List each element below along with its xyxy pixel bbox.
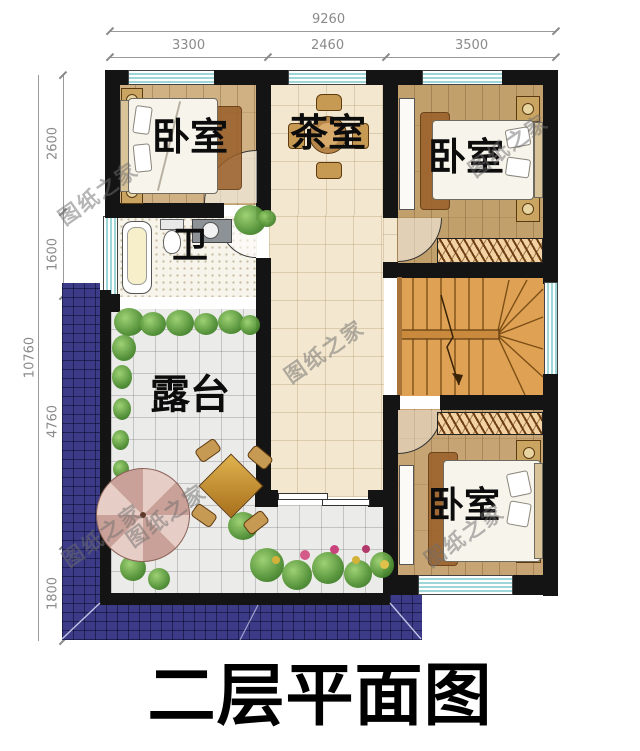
page-title: 二层平面图 bbox=[0, 660, 640, 735]
cabinet-icon bbox=[399, 98, 415, 210]
plant-icon bbox=[258, 210, 276, 227]
dim-left-seg3: 4760 bbox=[46, 402, 61, 442]
plant-icon bbox=[166, 310, 194, 336]
chair-icon bbox=[316, 162, 342, 179]
dim-top-seg1: 3300 bbox=[172, 38, 205, 53]
flower-icon bbox=[300, 550, 310, 560]
dim-left-seg4: 1800 bbox=[46, 574, 61, 614]
wall bbox=[383, 575, 418, 595]
plant-icon bbox=[112, 335, 136, 361]
wall bbox=[543, 374, 558, 596]
dim-line bbox=[38, 75, 39, 641]
dim-top-overall: 9260 bbox=[312, 12, 345, 27]
window-bedroom-br bbox=[418, 575, 513, 595]
wall bbox=[383, 263, 558, 278]
pillow-icon bbox=[506, 500, 532, 527]
floor-plan-page: 9260 3300 2460 3500 10760 2600 1600 4760… bbox=[0, 0, 640, 751]
room-label-tea-room: 茶室 bbox=[290, 114, 366, 152]
flower-icon bbox=[272, 556, 280, 564]
plant-icon bbox=[112, 430, 129, 450]
wall bbox=[256, 70, 271, 220]
sliding-door-panel bbox=[278, 493, 328, 500]
window-bath bbox=[103, 216, 118, 296]
dim-tick bbox=[552, 53, 560, 61]
wall bbox=[383, 70, 398, 218]
plant-icon bbox=[140, 312, 166, 336]
wardrobe-icon bbox=[437, 238, 543, 263]
stair-banister bbox=[397, 277, 402, 395]
door-gap-floor bbox=[383, 218, 398, 263]
stair-arrow bbox=[441, 295, 459, 385]
plant-icon bbox=[113, 398, 131, 420]
dim-tick bbox=[552, 27, 560, 35]
roof-band-bottom bbox=[62, 605, 422, 640]
window bbox=[128, 70, 216, 85]
dim-left-seg2: 1600 bbox=[46, 235, 61, 275]
pillow-icon bbox=[506, 470, 533, 498]
flower-icon bbox=[380, 560, 389, 569]
stair-arrowhead bbox=[452, 373, 463, 385]
parapet bbox=[100, 593, 390, 605]
room-label-bath: 卫 bbox=[172, 228, 208, 264]
plant-icon bbox=[282, 560, 312, 590]
plant-icon bbox=[194, 313, 218, 335]
parapet bbox=[100, 290, 111, 605]
sliding-door-panel bbox=[322, 499, 370, 506]
wardrobe-icon bbox=[437, 412, 543, 435]
cabinet-icon bbox=[399, 465, 414, 565]
stairs-icon bbox=[397, 277, 557, 402]
dim-line bbox=[110, 31, 556, 32]
dim-left-seg1: 2600 bbox=[46, 124, 61, 164]
dim-left-overall: 10760 bbox=[23, 336, 38, 380]
flower-icon bbox=[362, 545, 370, 553]
bed-headboard bbox=[534, 463, 543, 559]
wall bbox=[368, 490, 398, 507]
plant-icon bbox=[344, 560, 372, 588]
room-label-terrace: 露台 bbox=[150, 375, 230, 415]
bathtub-inner bbox=[127, 227, 147, 285]
plant-icon bbox=[250, 548, 284, 582]
dim-top-seg2: 2460 bbox=[311, 38, 344, 53]
wall bbox=[513, 575, 558, 595]
window bbox=[288, 70, 368, 85]
dim-top-seg3: 3500 bbox=[455, 38, 488, 53]
plant-icon bbox=[112, 365, 132, 389]
roof-band-corner bbox=[390, 592, 422, 640]
stair-rail bbox=[401, 330, 499, 339]
roof-band-left bbox=[62, 283, 100, 640]
flower-icon bbox=[330, 545, 339, 554]
dim-line bbox=[110, 57, 556, 58]
flower-icon bbox=[352, 556, 360, 564]
wall bbox=[105, 203, 224, 218]
wall bbox=[214, 70, 290, 85]
plant-icon bbox=[312, 552, 344, 584]
window bbox=[422, 70, 504, 85]
chair-icon bbox=[316, 94, 342, 111]
plant-icon bbox=[148, 568, 170, 590]
plant-icon bbox=[240, 315, 260, 335]
wall bbox=[255, 490, 278, 507]
room-label-bedroom-tl: 卧室 bbox=[152, 118, 228, 156]
wall bbox=[543, 70, 558, 284]
